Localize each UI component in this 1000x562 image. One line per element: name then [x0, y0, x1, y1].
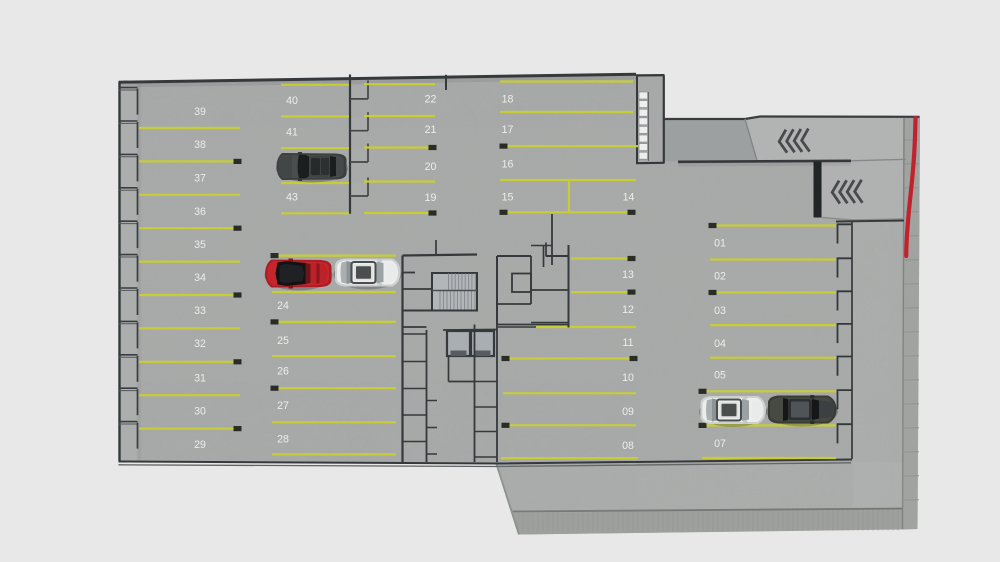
- svg-text:02: 02: [714, 271, 726, 283]
- svg-text:34: 34: [194, 272, 206, 284]
- svg-text:41: 41: [286, 127, 298, 139]
- svg-text:40: 40: [286, 95, 298, 107]
- svg-text:05: 05: [714, 370, 726, 382]
- svg-text:24: 24: [277, 300, 289, 312]
- svg-text:39: 39: [194, 106, 206, 118]
- svg-text:10: 10: [622, 372, 634, 384]
- svg-text:04: 04: [714, 338, 726, 350]
- svg-text:25: 25: [277, 335, 289, 347]
- svg-text:13: 13: [622, 269, 634, 281]
- svg-text:26: 26: [277, 366, 289, 378]
- svg-text:01: 01: [714, 238, 726, 250]
- svg-text:16: 16: [502, 159, 514, 171]
- svg-text:30: 30: [194, 406, 206, 418]
- svg-text:27: 27: [277, 400, 289, 412]
- svg-text:03: 03: [714, 305, 726, 317]
- svg-text:43: 43: [286, 192, 298, 204]
- svg-text:12: 12: [622, 304, 634, 316]
- svg-text:21: 21: [425, 124, 437, 136]
- svg-text:20: 20: [425, 161, 437, 173]
- svg-text:28: 28: [277, 434, 289, 446]
- svg-text:35: 35: [194, 239, 206, 251]
- svg-text:11: 11: [623, 337, 634, 349]
- svg-text:31: 31: [194, 373, 206, 385]
- svg-text:22: 22: [425, 94, 437, 106]
- svg-text:08: 08: [622, 440, 634, 452]
- svg-text:38: 38: [194, 139, 206, 151]
- svg-text:18: 18: [502, 94, 514, 106]
- svg-text:33: 33: [194, 305, 206, 317]
- svg-text:15: 15: [502, 192, 514, 204]
- svg-text:17: 17: [502, 124, 514, 136]
- svg-text:19: 19: [425, 192, 437, 204]
- svg-text:14: 14: [623, 192, 635, 204]
- svg-text:29: 29: [194, 439, 206, 451]
- svg-text:36: 36: [194, 206, 206, 218]
- svg-text:32: 32: [194, 338, 206, 350]
- svg-text:07: 07: [714, 438, 726, 450]
- svg-text:37: 37: [194, 173, 206, 185]
- svg-text:09: 09: [622, 406, 634, 418]
